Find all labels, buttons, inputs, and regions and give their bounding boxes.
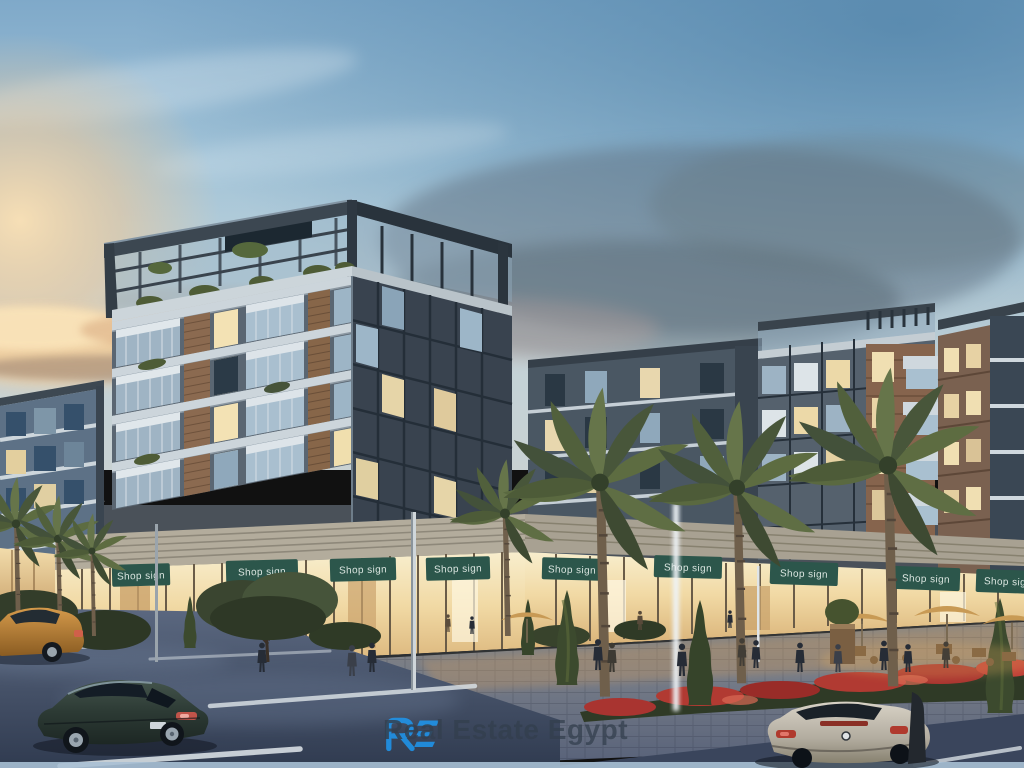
shop-sign: Shop sign [654, 555, 723, 579]
scene-illustration: Shop sign Shop sign Shop sign Shop sign … [0, 0, 1024, 768]
shop-sign: Shop sign [330, 557, 397, 582]
shop-sign: Shop sign [892, 566, 961, 591]
rendered-photo: Shop sign Shop sign Shop sign Shop sign … [0, 0, 1024, 768]
shop-sign: Shop sign [770, 561, 839, 586]
svg-text:Shop sign: Shop sign [664, 562, 712, 574]
svg-text:Shop sign: Shop sign [902, 573, 950, 586]
light-pole-glowing [673, 503, 679, 711]
svg-text:Shop sign: Shop sign [434, 563, 482, 575]
light-pole [155, 524, 158, 662]
svg-text:Shop sign: Shop sign [780, 568, 828, 581]
svg-text:Shop sign: Shop sign [548, 564, 596, 576]
planter-box [825, 599, 859, 664]
shop-sign: Shop sign [542, 557, 603, 581]
svg-text:Shop sign: Shop sign [984, 576, 1024, 589]
svg-text:Shop sign: Shop sign [339, 564, 387, 576]
shop-sign: Shop sign [426, 556, 491, 581]
shop-sign: Shop sign [976, 569, 1024, 594]
